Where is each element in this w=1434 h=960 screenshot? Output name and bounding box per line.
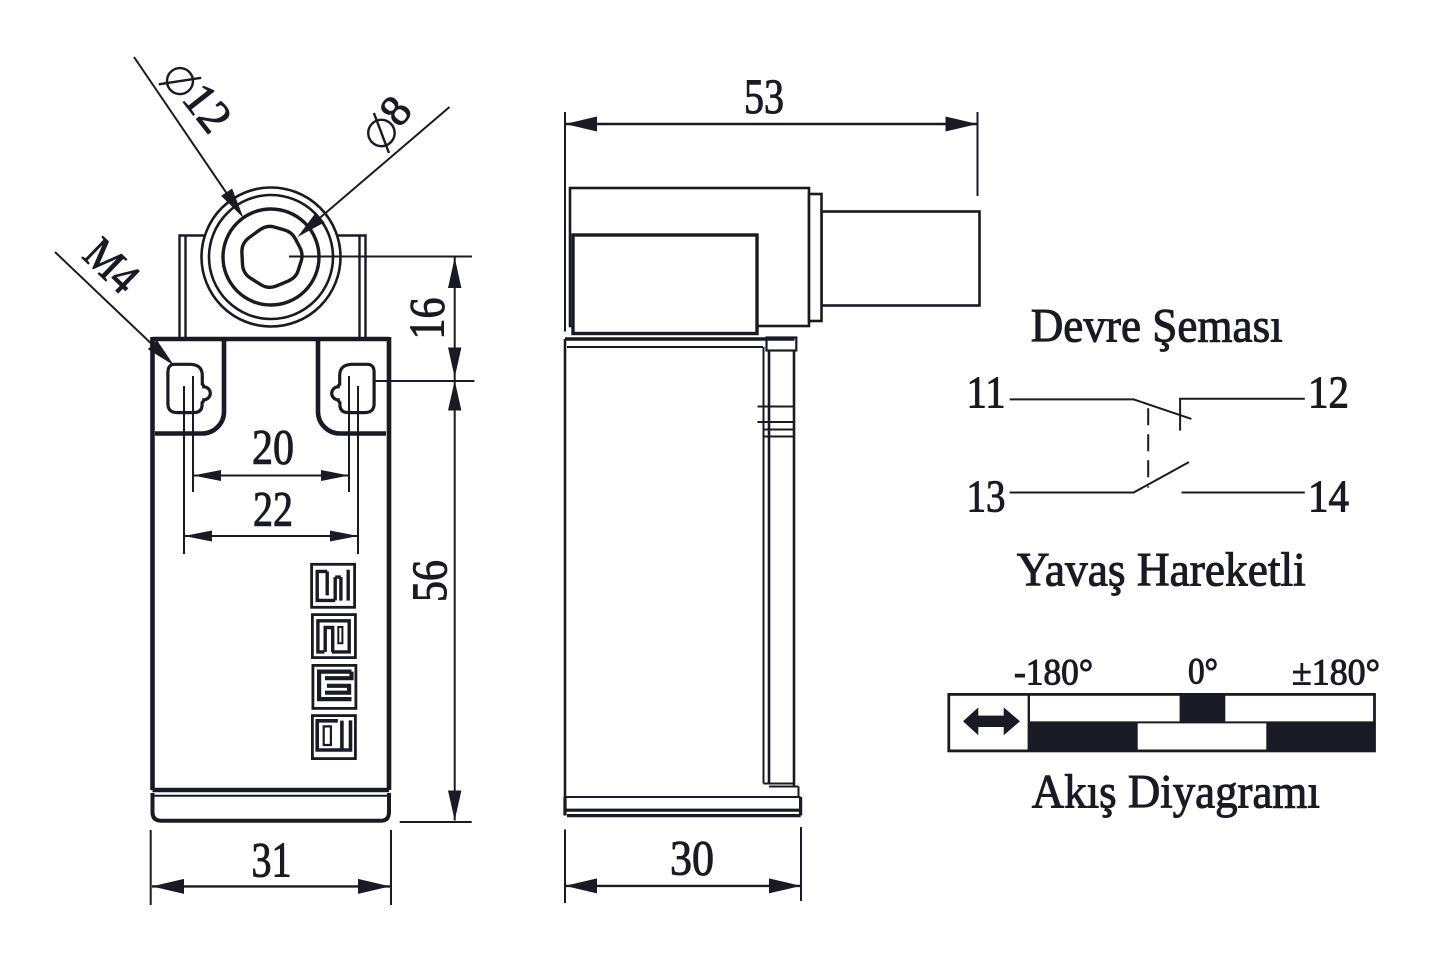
svg-text:12: 12 (1308, 367, 1349, 418)
svg-text:16: 16 (399, 298, 455, 340)
svg-text:-180°: -180° (1014, 653, 1093, 694)
svg-text:22: 22 (253, 481, 293, 537)
svg-text:Yavaş Hareketli: Yavaş Hareketli (1017, 544, 1306, 597)
svg-text:56: 56 (401, 560, 457, 602)
svg-text:Akış Diyagramı: Akış Diyagramı (1032, 766, 1320, 819)
svg-text:13: 13 (967, 471, 1006, 522)
svg-text:31: 31 (252, 832, 292, 888)
svg-text:0°: 0° (1188, 652, 1218, 693)
svg-text:12: 12 (172, 74, 242, 143)
svg-text:53: 53 (744, 68, 784, 124)
svg-text:20: 20 (252, 419, 294, 475)
svg-text:Devre Şeması: Devre Şeması (1031, 300, 1283, 353)
svg-text:11: 11 (967, 367, 1006, 418)
svg-text:M4: M4 (74, 228, 150, 304)
svg-text:±180°: ±180° (1292, 653, 1380, 694)
svg-text:14: 14 (1308, 471, 1349, 522)
svg-text:8: 8 (370, 87, 422, 135)
svg-text:30: 30 (670, 830, 714, 886)
